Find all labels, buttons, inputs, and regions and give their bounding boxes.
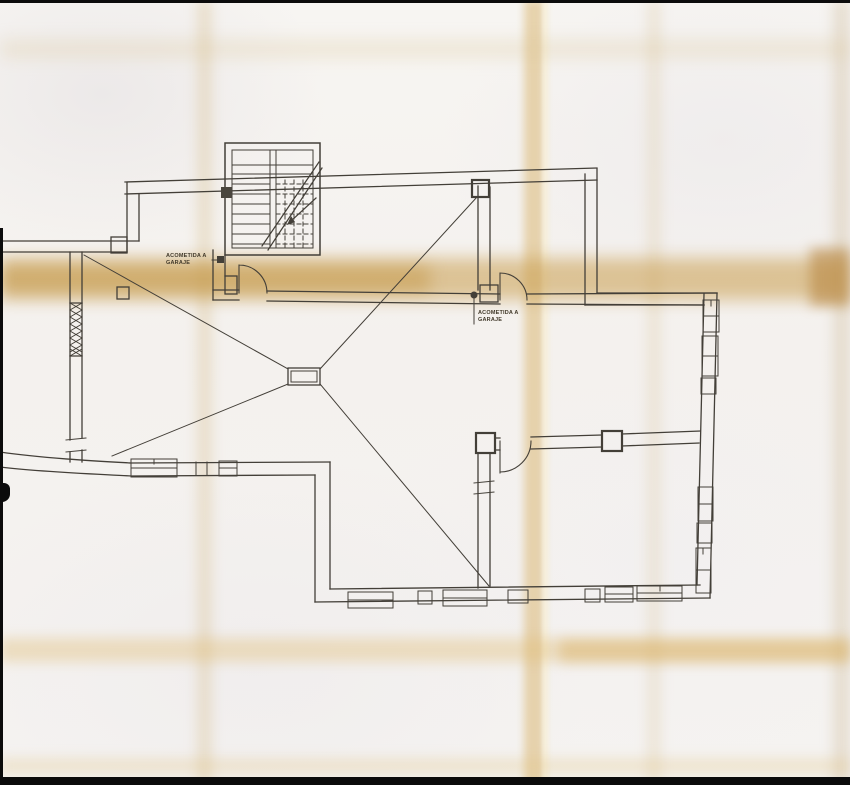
door-swing-stair — [239, 265, 267, 293]
annotation-line2: GARAJE — [478, 317, 519, 324]
annotation-label-right: ACOMETIDA A GARAJE — [478, 310, 519, 323]
annotation-line2: GARAJE — [166, 260, 207, 267]
hatched-wall — [70, 303, 82, 356]
scan-edge-bottom — [0, 777, 850, 785]
annotation-line1: ACOMETIDA A — [478, 310, 519, 317]
wall-column — [602, 431, 622, 451]
staircase — [221, 143, 322, 255]
door-swing-lower-room — [500, 441, 531, 473]
door-swing-upper-right — [500, 273, 527, 300]
wall-column — [476, 433, 495, 453]
wall-pillar — [111, 237, 127, 253]
wall-column — [472, 180, 489, 197]
annotation-line1: ACOMETIDA A — [166, 253, 207, 260]
scan-edge-top — [0, 0, 850, 3]
window-symbols — [131, 300, 719, 608]
duct-symbol — [117, 287, 129, 299]
plan-linework — [0, 0, 850, 785]
scan-edge-left — [0, 228, 3, 785]
annotation-leaders — [212, 256, 478, 324]
walls-group — [0, 168, 717, 602]
doors-group — [239, 265, 531, 473]
floor-plan-scan: ACOMETIDA A GARAJE ACOMETIDA A GARAJE — [0, 0, 850, 785]
acometida-point — [471, 292, 478, 299]
wall-niche — [225, 276, 237, 294]
annotation-label-left: ACOMETIDA A GARAJE — [166, 253, 207, 266]
wall-column-filled — [221, 187, 232, 198]
